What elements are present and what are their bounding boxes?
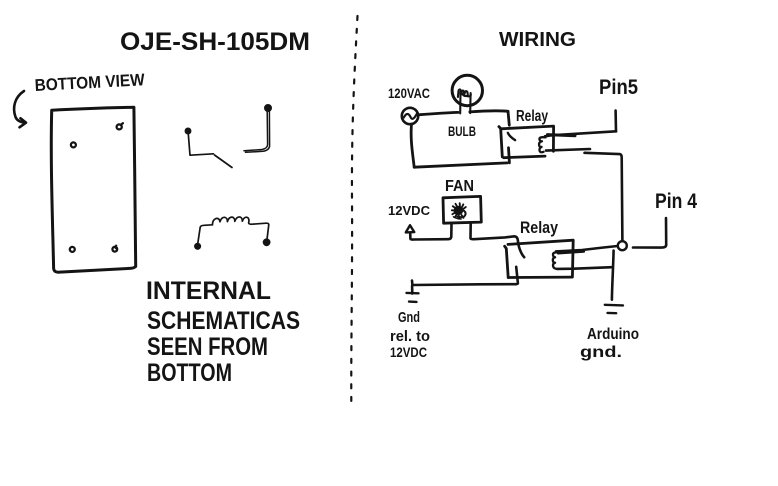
svg-text:120VAC: 120VAC xyxy=(388,86,430,101)
svg-text:BOTTOM: BOTTOM xyxy=(147,359,232,387)
svg-text:WIRING: WIRING xyxy=(499,29,576,51)
svg-text:INTERNAL: INTERNAL xyxy=(146,277,271,305)
svg-text:OJE-SH-105DM: OJE-SH-105DM xyxy=(120,28,310,56)
svg-text:BULB: BULB xyxy=(448,124,476,139)
svg-text:SCHEMATICAS: SCHEMATICAS xyxy=(147,307,300,335)
svg-text:Pin 4: Pin 4 xyxy=(655,190,697,213)
svg-text:Arduino: Arduino xyxy=(587,326,639,343)
svg-text:12VDC: 12VDC xyxy=(390,344,427,360)
svg-text:rel. to: rel. to xyxy=(390,328,430,345)
svg-text:gnd.: gnd. xyxy=(580,344,622,361)
svg-text:Relay: Relay xyxy=(516,108,548,125)
svg-text:Gnd: Gnd xyxy=(398,309,420,326)
svg-text:Relay: Relay xyxy=(520,218,558,237)
svg-text:12VDC: 12VDC xyxy=(388,203,431,218)
svg-text:Pin5: Pin5 xyxy=(599,76,638,99)
svg-text:SEEN FROM: SEEN FROM xyxy=(147,333,268,361)
svg-text:BOTTOM VIEW: BOTTOM VIEW xyxy=(34,70,146,95)
svg-text:FAN: FAN xyxy=(445,178,474,195)
